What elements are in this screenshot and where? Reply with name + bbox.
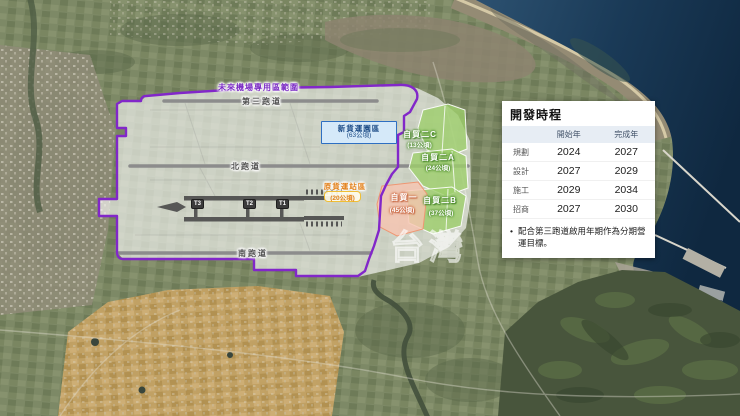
terminal-3-marker: T3 xyxy=(191,199,204,209)
end-year: 2027 xyxy=(598,143,656,162)
start-year: 2029 xyxy=(540,181,598,200)
row-label: 設計 xyxy=(502,162,540,181)
row-label: 規劃 xyxy=(502,143,540,162)
plan-wash xyxy=(99,85,471,277)
column-header-blank xyxy=(502,126,540,143)
note-bullet: • xyxy=(510,225,513,250)
table-row: 招商 2027 2030 xyxy=(502,200,655,219)
old-cargo-area-size: (20公頃) xyxy=(330,192,355,202)
column-header-start-year: 開始年 xyxy=(540,126,598,143)
row-label: 招商 xyxy=(502,200,540,219)
old-cargo-area-box: (20公頃) xyxy=(324,191,361,202)
end-year: 2029 xyxy=(598,162,656,181)
note-text: 配合第三跑道啟用年期作為分期營運目標。 xyxy=(518,225,647,250)
start-year: 2027 xyxy=(540,162,598,181)
satellite-map-view: 未來機場專用區範圍 第三跑道 北跑道 南跑道 新貨運園區 (63公頃) 原貨運站… xyxy=(0,0,740,416)
development-timeline-panel: 開發時程 開始年 完成年 規劃 2024 2027 設計 2027 2029 xyxy=(502,101,655,258)
end-year: 2030 xyxy=(598,200,656,219)
row-label: 施工 xyxy=(502,181,540,200)
table-row: 設計 2027 2029 xyxy=(502,162,655,181)
new-cargo-park-area: (63公頃) xyxy=(347,133,372,140)
table-row: 施工 2029 2034 xyxy=(502,181,655,200)
end-year: 2034 xyxy=(598,181,656,200)
terminal-1-marker: T1 xyxy=(276,199,289,209)
table-row: 規劃 2024 2027 xyxy=(502,143,655,162)
column-header-end-year: 完成年 xyxy=(598,126,656,143)
start-year: 2027 xyxy=(540,200,598,219)
panel-note: • 配合第三跑道啟用年期作為分期營運目標。 xyxy=(502,219,655,258)
panel-title: 開發時程 xyxy=(502,101,655,126)
terminal-2-marker: T2 xyxy=(243,199,256,209)
start-year: 2024 xyxy=(540,143,598,162)
timeline-table: 開始年 完成年 規劃 2024 2027 設計 2027 2029 施工 202… xyxy=(502,126,655,219)
new-cargo-park-box: 新貨運園區 (63公頃) xyxy=(321,121,397,144)
